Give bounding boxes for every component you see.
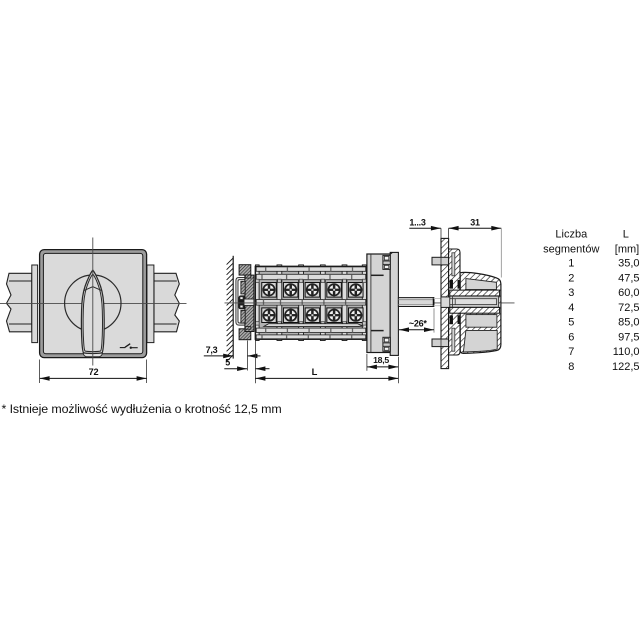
svg-text:3: 3 — [568, 287, 574, 299]
svg-text:* Istnieje możliwość wydłużeni: * Istnieje możliwość wydłużenia o krotno… — [2, 402, 282, 416]
svg-text:5: 5 — [225, 357, 230, 367]
svg-text:8: 8 — [568, 361, 574, 373]
svg-text:[mm]: [mm] — [615, 243, 639, 255]
svg-text:7: 7 — [568, 346, 574, 358]
svg-text:72,5: 72,5 — [618, 302, 639, 314]
svg-text:1...3: 1...3 — [409, 217, 426, 227]
svg-text:72: 72 — [89, 367, 99, 377]
svg-text:L: L — [623, 229, 629, 241]
svg-text:Liczba: Liczba — [555, 229, 588, 241]
svg-text:segmentów: segmentów — [543, 243, 599, 255]
svg-text:97,5: 97,5 — [618, 331, 639, 343]
svg-text:1: 1 — [568, 258, 574, 270]
svg-text:110,0: 110,0 — [613, 346, 640, 358]
svg-text:60,0: 60,0 — [618, 287, 639, 299]
svg-text:~26*: ~26* — [409, 318, 428, 328]
svg-text:6: 6 — [568, 331, 574, 343]
svg-text:47,5: 47,5 — [618, 272, 639, 284]
svg-text:122,5: 122,5 — [612, 361, 640, 373]
svg-text:L: L — [312, 366, 318, 377]
svg-text:85,0: 85,0 — [618, 317, 639, 329]
svg-text:4: 4 — [568, 302, 574, 314]
svg-text:35,0: 35,0 — [618, 258, 639, 270]
svg-text:5: 5 — [568, 317, 574, 329]
svg-text:31: 31 — [470, 217, 480, 227]
svg-text:18,5: 18,5 — [373, 355, 389, 365]
svg-text:7,3: 7,3 — [206, 345, 218, 355]
svg-text:2: 2 — [568, 272, 574, 284]
